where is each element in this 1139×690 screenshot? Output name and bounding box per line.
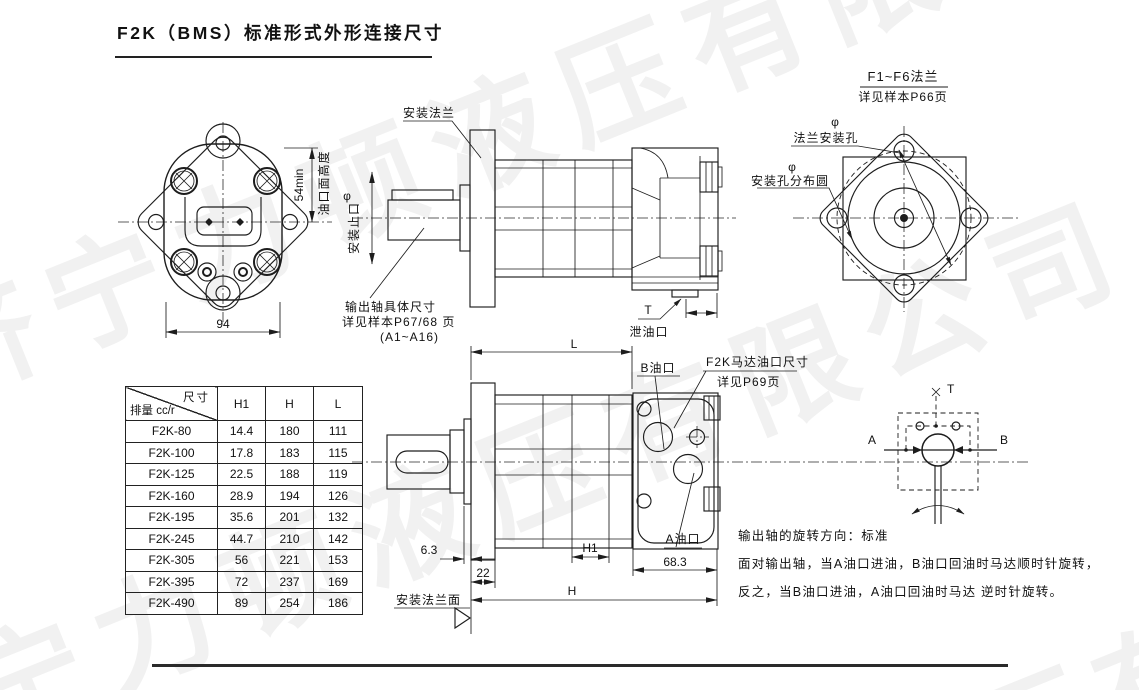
table-header-row: 尺寸 排量 cc/r H1 H L (126, 387, 363, 421)
l-cell: 126 (314, 485, 363, 507)
model-cell: F2K-160 (126, 485, 218, 507)
h-cell: 194 (266, 485, 314, 507)
table-row: F2K-16028.9194126 (126, 485, 363, 507)
front-view: 94 54min 油口面高度 (118, 122, 332, 338)
model-cell: F2K-395 (126, 571, 218, 593)
h1-cell: 56 (218, 550, 266, 572)
t-port-plug-mark (932, 388, 940, 396)
schematic-t-label: T (947, 382, 955, 396)
dim-l-label: L (571, 337, 578, 351)
dim-683-label: 68.3 (663, 555, 687, 569)
h1-cell: 44.7 (218, 528, 266, 550)
shaft-note-1: 输出轴具体尺寸 (345, 299, 436, 314)
h1-cell: 28.9 (218, 485, 266, 507)
side-view-top: 安装法兰 φ 安装止口 T 泄油口 输出轴具体尺寸 详见样本P67/68 页 (… (342, 105, 736, 344)
rotation-arrow (912, 506, 964, 515)
flange-hole-label: 法兰安装孔 (793, 130, 858, 145)
h-cell: 183 (266, 442, 314, 464)
corner-label-displacement: 排量 cc/r (130, 402, 175, 418)
table-row: F2K-19535.6201132 (126, 507, 363, 529)
h1-cell: 89 (218, 593, 266, 615)
table-row: F2K-39572237169 (126, 571, 363, 593)
model-cell: F2K-305 (126, 550, 218, 572)
catalog-page: 济宁力顿液压有限公司 济宁力顿液压有限公司 济宁力顿液压有限公司 F2K（BMS… (0, 0, 1139, 690)
h-cell: 254 (266, 593, 314, 615)
drain-port-label: 泄油口 (629, 325, 668, 339)
hydraulic-schematic: T A B (868, 382, 1008, 524)
table-row: F2K-24544.7210142 (126, 528, 363, 550)
h1-cell: 35.6 (218, 507, 266, 529)
schematic-a-label: A (868, 433, 876, 447)
footer-rule (152, 664, 1008, 667)
h-cell: 201 (266, 507, 314, 529)
model-cell: F2K-195 (126, 507, 218, 529)
mount-flange-label: 安装法兰 (403, 105, 455, 120)
h1-cell: 14.4 (218, 421, 266, 443)
h1-cell: 17.8 (218, 442, 266, 464)
drain-t-label: T (644, 303, 652, 317)
h-cell: 188 (266, 464, 314, 486)
h-cell: 210 (266, 528, 314, 550)
model-cell: F2K-490 (126, 593, 218, 615)
schematic-b-label: B (1000, 433, 1008, 447)
datum-triangle (455, 608, 470, 628)
flange-view: F1~F6法兰 详见样本P66页 φ 法兰安装孔 φ 安装孔分布圆 (751, 69, 1018, 312)
dimension-table: 尺寸 排量 cc/r H1 H L F2K-8014.4180111 F2K-1… (125, 386, 363, 615)
note-line-1: 输出轴的旋转方向：标准 (738, 522, 1139, 550)
shaft-note-3: (A1~A16) (380, 330, 439, 344)
model-cell: F2K-125 (126, 464, 218, 486)
port-b-label: B油口 (640, 361, 675, 375)
l-cell: 186 (314, 593, 363, 615)
col-header-h1: H1 (218, 387, 266, 421)
port-marker-left (205, 218, 213, 226)
flange-view-subtitle: 详见样本P66页 (858, 89, 947, 104)
bolt-circle-phi: φ (788, 160, 796, 174)
l-cell: 153 (314, 550, 363, 572)
port-marker-right (236, 218, 244, 226)
dim-22-label: 22 (476, 566, 490, 580)
l-cell: 119 (314, 464, 363, 486)
table-row: F2K-8014.4180111 (126, 421, 363, 443)
page-title: F2K（BMS）标准形式外形连接尺寸 (117, 20, 444, 45)
model-cell: F2K-245 (126, 528, 218, 550)
rotation-notes: 输出轴的旋转方向：标准 面对输出轴，当A油口进油，B油口回油时马达顺时针旋转， … (738, 522, 1139, 606)
flange-face-label: 安装法兰面 (396, 592, 461, 607)
dim-54min-label: 54min (292, 169, 306, 202)
corner-label-size: 尺寸 (183, 389, 210, 405)
dim-h-label: H (568, 584, 577, 598)
l-cell: 132 (314, 507, 363, 529)
l-cell: 169 (314, 571, 363, 593)
port-a-label: A油口 (665, 532, 700, 546)
title-underline (115, 56, 432, 58)
shaft-note-2: 详见样本P67/68 页 (342, 314, 455, 329)
flange-hole-phi: φ (831, 115, 839, 129)
dim-94-label: 94 (216, 317, 230, 331)
dim-h1-label: H1 (582, 541, 598, 555)
table-corner-cell: 尺寸 排量 cc/r (126, 387, 218, 421)
hex-plugs (171, 168, 280, 275)
h1-cell: 22.5 (218, 464, 266, 486)
h-cell: 180 (266, 421, 314, 443)
table-row: F2K-49089254186 (126, 593, 363, 615)
h-cell: 237 (266, 571, 314, 593)
port-note-1: F2K马达油口尺寸 (706, 355, 809, 369)
port-note-2: 详见P69页 (717, 374, 780, 389)
l-cell: 142 (314, 528, 363, 550)
model-cell: F2K-100 (126, 442, 218, 464)
note-line-2: 面对输出轴，当A油口进油，B油口回油时马达顺时针旋转， (738, 550, 1139, 578)
l-cell: 111 (314, 421, 363, 443)
table-row: F2K-30556221153 (126, 550, 363, 572)
table-row: F2K-10017.8183115 (126, 442, 363, 464)
bolt-circle-label: 安装孔分布圆 (751, 173, 829, 188)
model-cell: F2K-80 (126, 421, 218, 443)
col-header-h: H (266, 387, 314, 421)
table-row: F2K-12522.5188119 (126, 464, 363, 486)
note-line-3: 反之，当B油口进油，A油口回油时马达 逆时针旋转。 (738, 578, 1139, 606)
col-header-l: L (314, 387, 363, 421)
spigot-phi: φ (343, 189, 351, 203)
l-cell: 115 (314, 442, 363, 464)
h-cell: 221 (266, 550, 314, 572)
dim-63-label: 6.3 (421, 543, 438, 557)
spigot-label: 安装止口 (346, 202, 361, 254)
h1-cell: 72 (218, 571, 266, 593)
flange-view-title: F1~F6法兰 (868, 69, 939, 84)
oil-port-face-height-label: 油口面高度 (316, 150, 331, 215)
